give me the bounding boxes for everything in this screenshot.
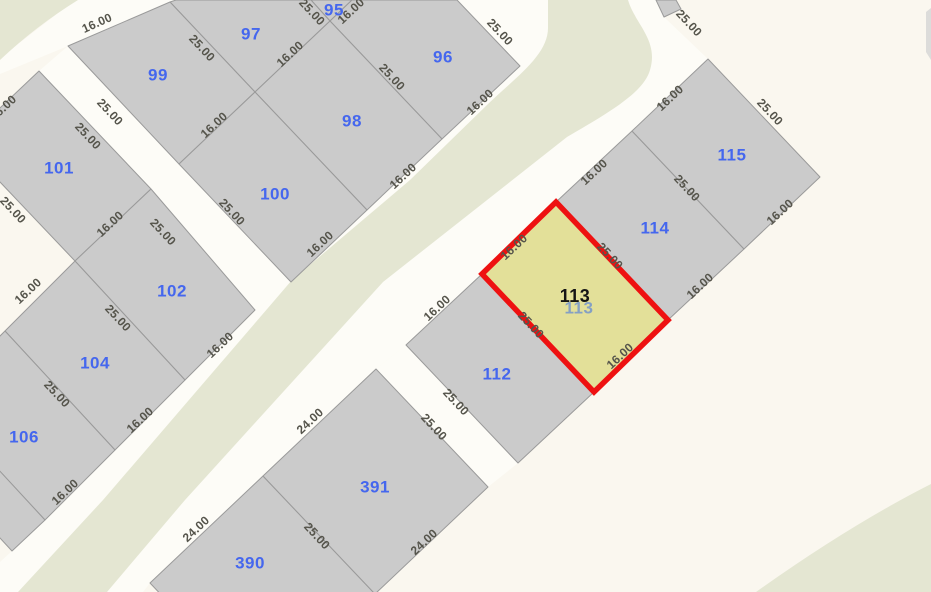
- parcel-number-97: 97: [241, 25, 261, 44]
- parcel-number-96: 96: [433, 48, 453, 67]
- parcel-number-101: 101: [44, 159, 74, 178]
- parcel-number-390: 390: [235, 554, 265, 573]
- parcel-number-95: 95: [324, 1, 344, 20]
- right-edge-sliver: [926, 8, 931, 60]
- parcel-number-113-selected-label: 113: [560, 286, 591, 306]
- parcel-number-112: 112: [483, 365, 512, 384]
- parcel-number-98: 98: [342, 112, 362, 131]
- parcel-number-100: 100: [260, 185, 290, 204]
- parcel-number-102: 102: [157, 282, 187, 301]
- parcel-number-391: 391: [360, 478, 390, 497]
- parcel-number-99: 99: [148, 66, 168, 85]
- cadastral-map: 16.0025.0025.0016.0016.0016.0025.0025.00…: [0, 0, 931, 592]
- parcel-number-114: 114: [641, 219, 670, 238]
- cadastral-map-viewport[interactable]: 16.0025.0025.0016.0016.0016.0025.0025.00…: [0, 0, 931, 592]
- parcel-number-104: 104: [80, 354, 110, 373]
- parcel-number-115: 115: [718, 146, 747, 165]
- parcel-number-106: 106: [9, 428, 39, 447]
